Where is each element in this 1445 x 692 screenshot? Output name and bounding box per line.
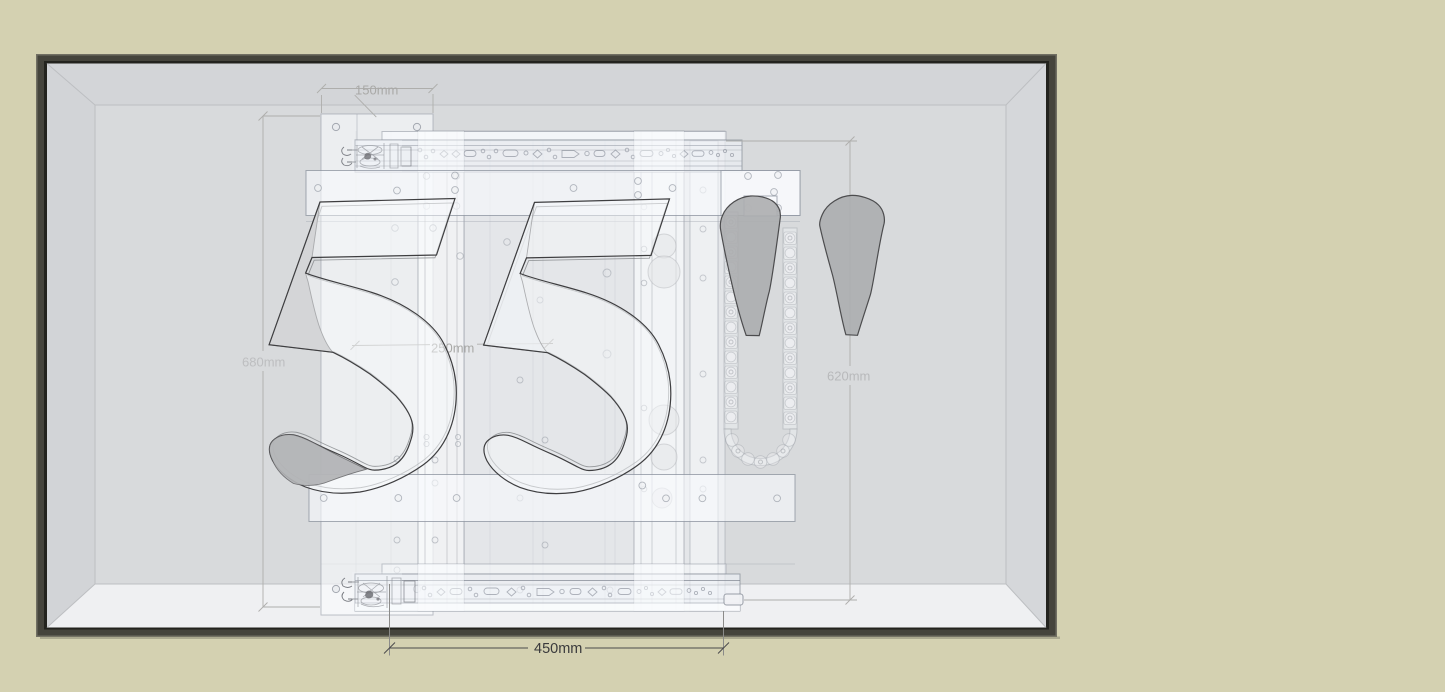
svg-text:150mm: 150mm bbox=[355, 83, 398, 98]
svg-text:680mm: 680mm bbox=[242, 355, 285, 370]
svg-text:620mm: 620mm bbox=[827, 369, 870, 384]
svg-text:450mm: 450mm bbox=[534, 641, 582, 657]
